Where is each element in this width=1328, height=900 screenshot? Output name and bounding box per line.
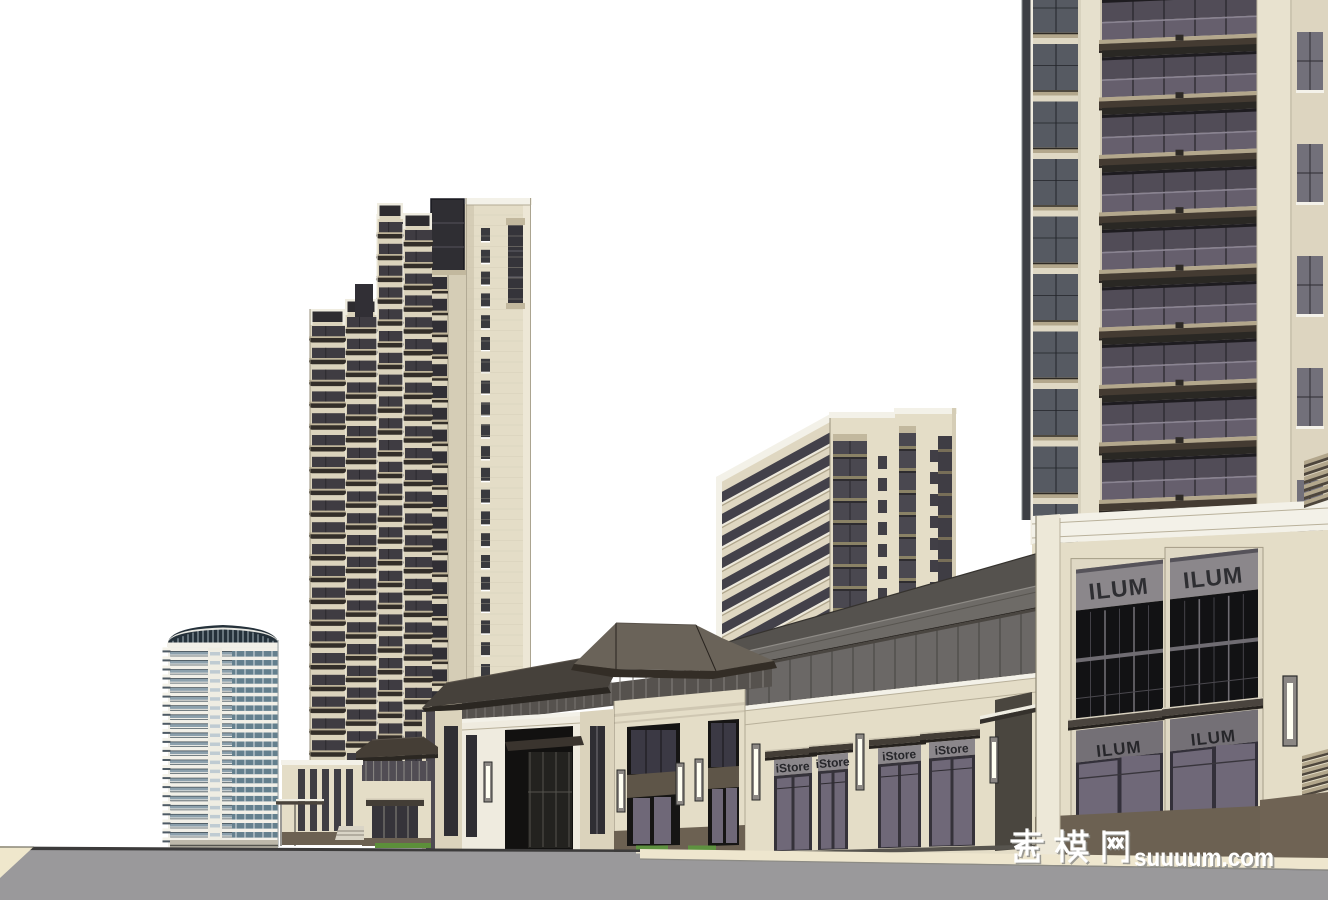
svg-text:iStore: iStore bbox=[815, 755, 850, 772]
svg-text:iStore: iStore bbox=[775, 759, 810, 776]
svg-text:iStore: iStore bbox=[934, 741, 969, 758]
svg-text:iStore: iStore bbox=[882, 747, 917, 764]
svg-text:suuuum.com: suuuum.com bbox=[1134, 844, 1274, 872]
